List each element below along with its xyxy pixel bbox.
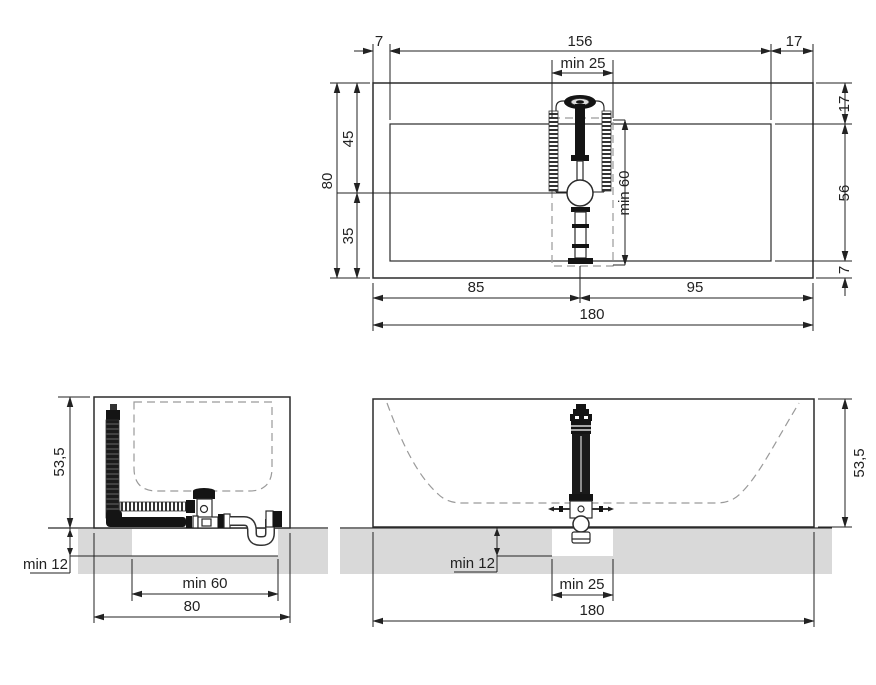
dim-label-front-overall-length: 180 (579, 602, 604, 619)
dim-label-basin-length: 156 (567, 33, 592, 50)
overflow-union-nut (186, 500, 195, 513)
trap-union-left (218, 514, 224, 528)
trap-outlet-coupling (266, 511, 273, 527)
dim-label-front-recess-width: min 25 (559, 576, 604, 593)
column-cap (573, 409, 589, 414)
flex-hose-right (602, 111, 611, 191)
mixer-ball-joint (567, 180, 593, 206)
dim-label-basin-width: 56 (836, 185, 853, 202)
dim-label-rim-bottom: 7 (836, 266, 853, 274)
dim-label-front-recess-depth: min 12 (450, 555, 495, 572)
hand-shower-column (575, 104, 585, 156)
dim-label-side-recess-depth: min 12 (23, 556, 68, 573)
supply-nipple (110, 404, 117, 410)
plan-view: 7 156 17 min 25 17 56 7 80 45 35 min 60 … (319, 33, 853, 331)
cap-slit-left (575, 416, 579, 419)
pipe-band-2 (572, 244, 589, 248)
column-cap-base (570, 414, 592, 421)
technical-drawing: 7 156 17 min 25 17 56 7 80 45 35 min 60 … (0, 0, 876, 685)
column-ball-joint (573, 516, 589, 532)
dim-label-front-height: 53,5 (851, 448, 868, 477)
trap-coupling (224, 514, 230, 528)
drain-flange-top (193, 488, 215, 494)
dim-label-mixer-from-left: 85 (468, 279, 485, 296)
column-collar (571, 155, 589, 161)
column-top-nipple (576, 404, 586, 409)
dim-label-margin-right: 17 (786, 33, 803, 50)
dim-label-rim-top: 17 (836, 96, 853, 113)
supply-hose-vertical (106, 420, 119, 518)
drain-body-port (201, 506, 208, 513)
column-stem (577, 161, 583, 181)
dim-label-mixer-offset-top: 45 (340, 131, 357, 148)
column-band-section (571, 421, 591, 434)
flex-hose-left (549, 111, 558, 191)
dim-label-mixer-offset-bottom: 35 (340, 228, 357, 245)
side-view: 53,5 min 12 min 60 80 (23, 397, 328, 623)
mixer-handle-dot (576, 100, 584, 104)
column-collar (569, 494, 593, 501)
plan-tub-outline (373, 83, 813, 278)
overflow-hose (120, 502, 186, 511)
dim-label-overall-width: 80 (319, 173, 336, 190)
front-tub-outline (373, 399, 814, 527)
cap-slit-right (584, 416, 588, 419)
dim-label-overall-length: 180 (579, 306, 604, 323)
dim-label-side-recess-width: min 60 (182, 575, 227, 592)
dim-label-recess-min-length: min 60 (616, 170, 633, 215)
dim-label-recess-min-width: min 25 (560, 55, 605, 72)
valve-coupling (193, 516, 198, 528)
mixer-block-screw (578, 506, 584, 512)
column-base-piece (572, 532, 590, 543)
trap-outlet-nut (273, 511, 282, 527)
dim-label-side-height: 53,5 (51, 447, 68, 476)
pipe-flange (568, 258, 593, 264)
ball-collar (571, 207, 590, 212)
dim-label-margin-left: 7 (375, 33, 383, 50)
drain-pipe-horizontal (112, 517, 186, 527)
front-view: 53,5 min 12 min 25 180 (340, 399, 868, 627)
supply-pipe (575, 212, 586, 258)
supply-fitting (106, 410, 120, 420)
drawing-canvas: 7 156 17 min 25 17 56 7 80 45 35 min 60 … (0, 0, 876, 685)
dim-label-mixer-from-right: 95 (687, 279, 704, 296)
rod-bead-left (559, 506, 563, 512)
rod-bead-right (599, 506, 603, 512)
valve-union-left (186, 516, 192, 528)
pipe-band-1 (572, 224, 589, 228)
dim-label-side-overall-width: 80 (184, 598, 201, 615)
